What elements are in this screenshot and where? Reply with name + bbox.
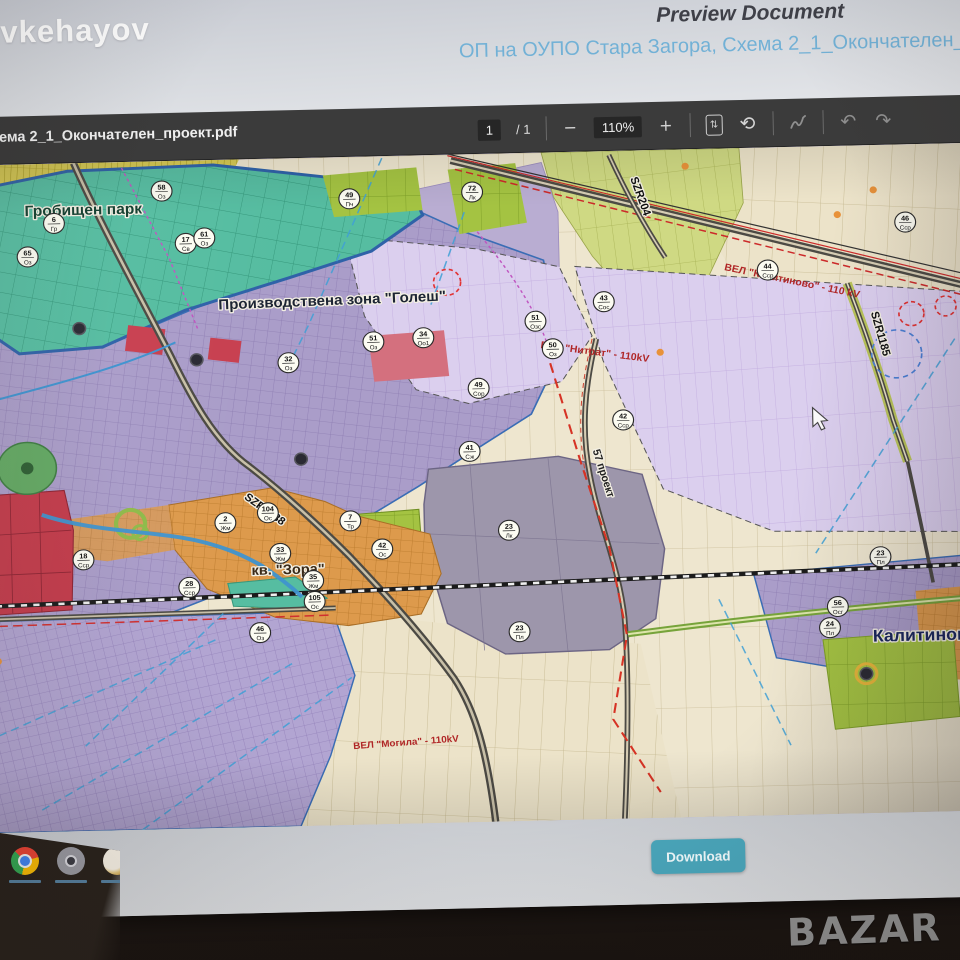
svg-text:51: 51	[369, 334, 377, 342]
map-badge: 2Жм	[215, 513, 236, 533]
svg-text:51: 51	[531, 314, 539, 322]
svg-text:Оз: Оз	[256, 635, 264, 642]
svg-text:35: 35	[309, 573, 317, 581]
svg-text:58: 58	[157, 184, 165, 192]
page-number-input[interactable]: 1	[478, 119, 502, 141]
svg-text:41: 41	[465, 444, 473, 452]
active-app-indicator	[9, 880, 41, 883]
map-badge: 72Лк	[461, 182, 482, 202]
svg-text:65: 65	[23, 249, 31, 257]
svg-text:42: 42	[378, 542, 386, 550]
pdf-filename: Схема 2_1_Окончателен_проект.pdf	[0, 124, 238, 146]
document-title-link[interactable]: ОП на ОУПО Стара Загора, Схема 2_1_Оконч…	[459, 28, 960, 63]
monitor-screen: vkehayov Preview Document ОП на ОУПО Ста…	[0, 0, 960, 919]
map-badge: 6Гр	[43, 213, 64, 233]
svg-text:Оз: Оз	[158, 194, 166, 201]
map-badge: 51Озс	[525, 311, 546, 331]
svg-text:28: 28	[185, 580, 193, 588]
map-badge: 7Тр	[340, 511, 361, 531]
map-badge: 23Пл	[509, 622, 530, 642]
svg-text:Сср: Сср	[618, 422, 630, 429]
download-button[interactable]: Download	[651, 838, 746, 874]
map-badge: 46Оз	[250, 622, 271, 642]
map-badge: 43Сос	[593, 291, 614, 311]
camera-icon[interactable]	[57, 847, 85, 875]
label-cemetery-park: Гробищен парк	[24, 201, 142, 220]
map-badge: 41Сж	[459, 441, 480, 461]
svg-text:18: 18	[79, 552, 87, 560]
svg-text:42: 42	[619, 412, 627, 420]
svg-text:Ос: Ос	[378, 552, 386, 559]
map-badge: 17Св	[175, 233, 196, 253]
zoom-in-button[interactable]: +	[657, 118, 675, 134]
svg-text:17: 17	[181, 236, 189, 244]
svg-text:6: 6	[52, 216, 56, 224]
map-badge: 23Лк	[498, 520, 519, 540]
svg-text:Ос: Ос	[264, 515, 272, 522]
svg-text:Оз: Оз	[201, 240, 209, 247]
map-badge: 24Пл	[819, 617, 840, 637]
svg-text:105: 105	[308, 594, 320, 602]
svg-text:43: 43	[600, 294, 608, 302]
svg-text:Сос: Сос	[598, 304, 609, 311]
map-badge: 35Жм	[303, 570, 324, 590]
svg-text:49: 49	[474, 381, 482, 389]
map-badge: 105Ос	[304, 591, 325, 611]
map-badge: 49Пч	[339, 189, 360, 209]
svg-text:Гр: Гр	[51, 226, 58, 233]
map-badge: 18Сср	[73, 550, 94, 570]
map-badge: 50Оз	[542, 339, 563, 359]
svg-text:Ос: Ос	[311, 604, 319, 611]
zoom-level-input[interactable]: 110%	[594, 116, 643, 138]
svg-text:49: 49	[345, 191, 353, 199]
site-logo[interactable]: vkehayov	[0, 11, 150, 50]
svg-text:Пл: Пл	[826, 630, 835, 637]
page-count-label: / 1	[516, 121, 531, 136]
svg-text:Оз: Оз	[285, 365, 293, 372]
svg-text:Пч: Пч	[346, 201, 354, 208]
svg-text:Оз: Оз	[549, 351, 557, 358]
redo-icon[interactable]: ↷	[873, 111, 893, 130]
zoom-out-button[interactable]: −	[561, 120, 579, 136]
map-badge: 44Сср	[757, 260, 778, 280]
toolbar-divider	[772, 111, 774, 135]
svg-text:Лк: Лк	[506, 533, 513, 540]
svg-text:44: 44	[763, 263, 771, 271]
svg-text:Тр: Тр	[347, 523, 355, 530]
svg-text:Жм: Жм	[220, 525, 230, 532]
os-taskbar	[0, 833, 120, 960]
svg-text:61: 61	[200, 231, 208, 239]
chrome-icon[interactable]	[11, 847, 39, 875]
toolbar-divider	[689, 113, 691, 137]
svg-text:Осг: Осг	[833, 609, 844, 616]
svg-text:Жм: Жм	[308, 583, 318, 590]
map-badge: 58Оз	[151, 181, 172, 201]
svg-text:Оз: Оз	[24, 259, 32, 266]
svg-text:23: 23	[505, 523, 513, 531]
map-badge: 42Сср	[613, 410, 634, 430]
map-badge: 61Оз	[194, 228, 215, 248]
svg-text:Сср: Сср	[78, 562, 90, 569]
svg-text:Сор: Сор	[473, 391, 485, 398]
map-badge: 23Пл	[870, 547, 891, 567]
svg-text:23: 23	[515, 624, 523, 632]
map-badge: 104Ос	[257, 503, 278, 523]
taskbar-item[interactable]	[56, 847, 86, 883]
svg-text:2: 2	[223, 515, 227, 523]
svg-text:Сср: Сср	[184, 590, 196, 597]
label-kalitinovo: Калитиново	[873, 624, 960, 646]
svg-text:7: 7	[348, 513, 352, 521]
svg-text:Сж: Сж	[465, 454, 475, 461]
svg-text:46: 46	[901, 215, 909, 223]
svg-text:24: 24	[826, 620, 834, 628]
map-badge: 65Оз	[17, 247, 38, 267]
svg-text:72: 72	[468, 185, 476, 193]
map-zone-gray-parcel	[423, 454, 667, 656]
map-badge: 33Жм	[270, 543, 291, 563]
svg-text:50: 50	[549, 341, 557, 349]
pdf-map-canvas[interactable]: Гробищен парк Производствена зона "Голеш…	[0, 143, 960, 834]
svg-text:Пл: Пл	[876, 559, 885, 566]
svg-text:56: 56	[834, 599, 842, 607]
map-zone-urban-bottomleft	[0, 611, 358, 834]
svg-text:104: 104	[262, 505, 274, 513]
map-badge: 34Оо1	[413, 328, 434, 348]
taskbar-item[interactable]	[10, 847, 40, 883]
svg-text:Пл: Пл	[516, 634, 525, 641]
map-badge: 49Сор	[468, 378, 489, 398]
bazar-watermark: BAZAR	[787, 905, 943, 954]
svg-text:33: 33	[276, 546, 284, 554]
svg-text:Лк: Лк	[469, 195, 476, 202]
svg-text:Сср: Сср	[762, 273, 774, 280]
svg-text:Св: Св	[182, 246, 190, 253]
map-badge: 42Ос	[372, 539, 393, 559]
map-badge: 32Оз	[278, 353, 299, 373]
svg-text:34: 34	[419, 330, 427, 338]
active-app-indicator	[55, 880, 87, 883]
map-badge: 28Сср	[179, 577, 200, 597]
toolbar-divider	[822, 110, 824, 134]
toolbar-divider	[545, 116, 547, 140]
map-badge: 56Осг	[827, 596, 848, 616]
fit-page-icon[interactable]: ⇅	[705, 114, 722, 135]
map-badge: 51Оз	[363, 332, 384, 352]
undo-icon[interactable]: ↶	[838, 112, 858, 131]
svg-text:Оз: Оз	[370, 344, 378, 351]
rotate-icon[interactable]: ⟲	[737, 114, 757, 133]
svg-text:46: 46	[256, 625, 264, 633]
svg-text:Озс: Озс	[530, 324, 541, 331]
svg-text:32: 32	[284, 355, 292, 363]
svg-text:Жм: Жм	[275, 556, 285, 563]
svg-text:Сср: Сср	[900, 225, 912, 232]
map-badge: 46Сср	[895, 212, 916, 232]
svg-text:Оо1: Оо1	[417, 340, 430, 347]
page-title: Preview Document	[590, 0, 910, 29]
draw-annotate-icon[interactable]	[788, 113, 807, 131]
svg-text:23: 23	[876, 549, 884, 557]
